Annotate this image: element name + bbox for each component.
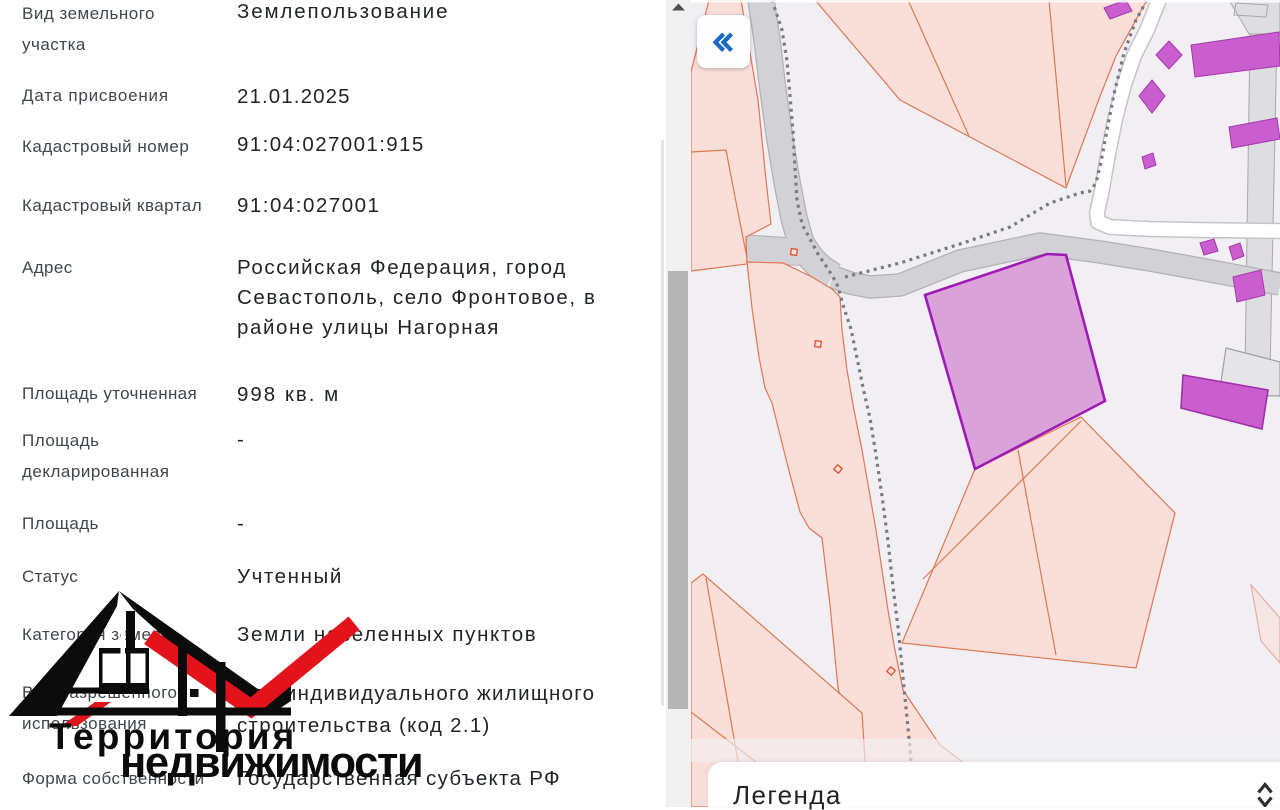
svg-text:недвижимости: недвижимости <box>120 739 422 787</box>
